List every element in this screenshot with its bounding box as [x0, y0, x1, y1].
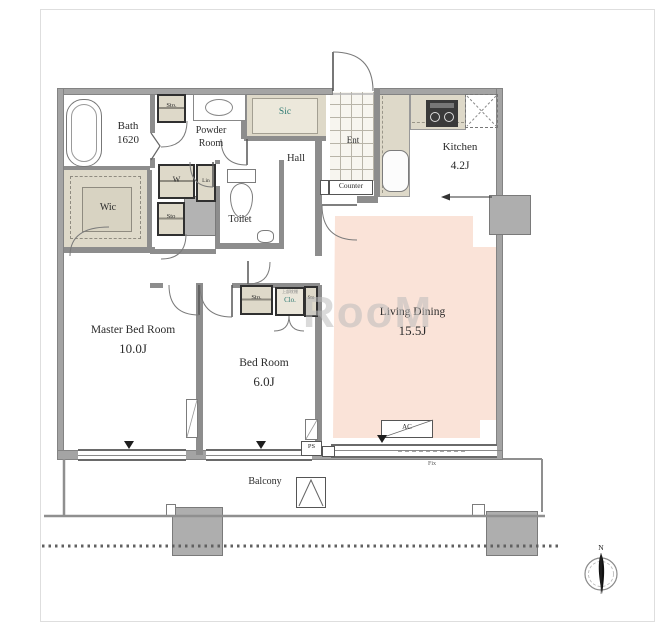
kitchen-label: Kitchen: [428, 142, 492, 154]
wic-label: Wic: [88, 203, 128, 214]
sic-label: Sic: [253, 108, 317, 118]
closet-door-arc-right: [289, 316, 304, 331]
bedroom-closet-note: 上部枕棚: [275, 290, 305, 294]
bedroom-size-label: 6.0J: [226, 375, 302, 389]
master-panel-diagonal: [187, 400, 197, 437]
entrance-door-arc: [333, 52, 373, 91]
fridge-cross: [467, 96, 496, 126]
bedroom-closet-label: Clo.: [275, 297, 305, 304]
storage-mid-label: Sto: [157, 214, 185, 221]
corridor-door-arc: [248, 262, 270, 284]
bedroom-window-marker: [256, 441, 266, 449]
living-dining-label: Living Dining: [365, 306, 460, 318]
storage-top-label: Sto.: [157, 103, 186, 110]
counter-label: Counter: [330, 182, 372, 190]
storage-mid-door-arc: [161, 234, 186, 259]
compass-north-label: N: [598, 543, 604, 552]
floor-plan: N Bath 1620 Powder Room Wic Toilet Hall …: [0, 0, 664, 630]
master-bedroom-size-label: 10.0J: [76, 342, 190, 356]
ps-label: PS: [301, 444, 322, 451]
linen-label: Lin: [196, 179, 216, 185]
living-window-marker: [377, 435, 387, 443]
master-bedroom-label: Master Bed Room: [76, 324, 190, 336]
balcony-hatch-lines: [299, 480, 323, 506]
wic-door-arc: [70, 227, 109, 256]
hall-label: Hall: [274, 153, 318, 164]
bedroom-label: Bed Room: [226, 357, 302, 369]
compass-needle: [599, 553, 604, 594]
plan-linework: N: [0, 0, 664, 630]
ent-label: Ent: [337, 136, 369, 145]
living-door-arc: [322, 205, 357, 240]
closet-door-arc-left: [274, 316, 289, 331]
ac-label: AC: [381, 424, 433, 431]
bedroom-door-arc: [200, 285, 232, 317]
powder-room-label-2: Room: [180, 139, 242, 150]
kitchen-opening-arrowhead: [441, 194, 450, 201]
fix-window-label: Fix: [420, 461, 444, 467]
master-door-arc: [169, 285, 199, 315]
bedroom-storage-label: Sto.: [240, 295, 273, 302]
powder-room-label-1: Powder: [180, 126, 242, 137]
master-window-marker: [124, 441, 134, 449]
compass: N: [585, 543, 617, 594]
toilet-label: Toilet: [217, 215, 263, 226]
washer-label: W: [158, 176, 195, 184]
bedroom-storage-narrow-label: Sto: [303, 296, 319, 301]
bath-label: Bath: [103, 121, 153, 133]
living-dining-size-label: 15.5J: [365, 324, 460, 338]
bedroom-panel-diagonal: [306, 420, 317, 439]
bath-size-label: 1620: [103, 135, 153, 147]
balcony-label: Balcony: [238, 477, 292, 488]
kitchen-size-label: 4.2J: [428, 160, 492, 172]
